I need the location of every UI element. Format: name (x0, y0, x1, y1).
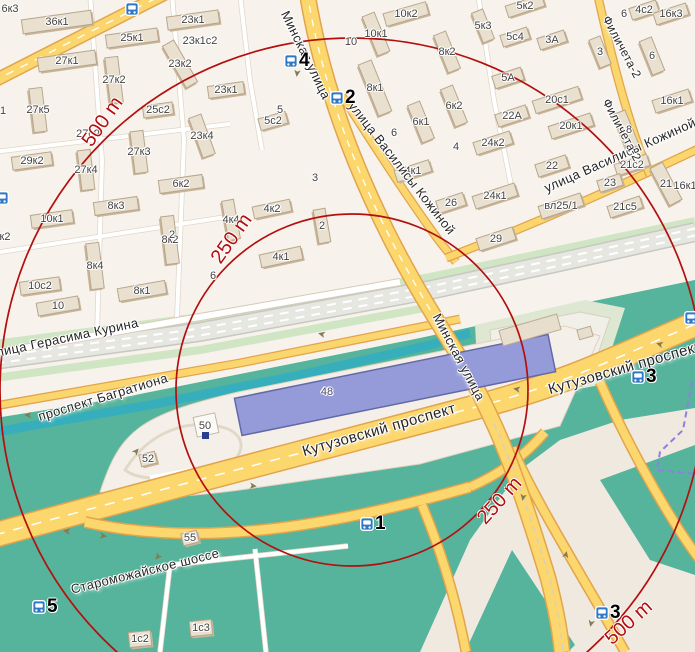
bus-stop-icon (631, 370, 645, 384)
building-label: 22А (502, 110, 522, 122)
bus-stop-icon (0, 191, 9, 205)
building-label: 23к1 (181, 14, 204, 26)
building-label: 1с3 (192, 622, 210, 634)
building-label: 16к1 (660, 95, 683, 107)
bus-stop-icon (595, 606, 609, 620)
building-label: 27к2 (102, 74, 125, 86)
bus-stop-icon (32, 600, 46, 614)
building-label: 6 (649, 50, 655, 62)
building-label: 6 (621, 8, 627, 20)
building-label: 1 (0, 105, 6, 117)
marker-number: 3 (610, 606, 621, 620)
building-label: 25с2 (146, 104, 170, 116)
building-label: 8к4 (86, 260, 103, 272)
building-label: 10к1 (40, 213, 63, 225)
building-label: 8к2 (438, 46, 455, 58)
building-label: 27к5 (26, 104, 49, 116)
building-label: 6к2 (172, 178, 189, 190)
building-label: 5к3 (474, 20, 491, 32)
building-label: 4к2 (263, 203, 280, 215)
transit-stop-marker-unnumbered[interactable] (125, 2, 139, 16)
building-label: 23к1с2 (183, 35, 218, 47)
building-label: 1с2 (131, 633, 149, 645)
building-label: 3А (545, 34, 558, 46)
building-label: 23 (604, 177, 616, 189)
bus-stop-icon (330, 91, 344, 105)
marker-number: 4 (299, 54, 310, 68)
building-label: 6к1 (412, 116, 429, 128)
building-label: 2 (169, 229, 175, 241)
building-label: 5с4 (506, 31, 524, 43)
bus-stop-icon (360, 517, 374, 531)
building-label: 52 (142, 453, 154, 465)
building-label: к2 (0, 231, 10, 243)
building-label: 20с1 (545, 94, 569, 106)
building-label: 3 (597, 46, 603, 58)
building-label: 36к1 (45, 16, 68, 28)
marker-number: 3 (646, 370, 657, 384)
road-direction-arrow: ➤ (24, 409, 32, 419)
building-label: 27к1 (55, 55, 78, 67)
road-direction-arrow: ➤ (62, 524, 72, 535)
marker-number: 1 (375, 517, 386, 531)
building-label: 23к1 (214, 84, 237, 96)
building-label: 20к1 (559, 120, 582, 132)
building-label: 25к1 (120, 32, 143, 44)
road-direction-arrow: ➤ (98, 531, 108, 542)
building-label: 10с2 (28, 280, 52, 292)
building-label: 6к2 (445, 100, 462, 112)
building-label: 8к1 (366, 82, 383, 94)
transit-stop-marker-3[interactable]: 3 (631, 370, 657, 384)
building-label: 5с2 (264, 115, 282, 127)
building-label: 10 (52, 300, 64, 312)
transit-stop-marker-4[interactable]: 4 (284, 54, 310, 68)
building-label: 8к1 (133, 285, 150, 297)
building-label: 27к4 (74, 164, 97, 176)
transit-stop-marker-unnumbered[interactable] (684, 311, 695, 325)
transit-stop-marker-5[interactable]: 5 (32, 600, 58, 614)
map-canvas[interactable]: 6к336к125к123к123к1с227к123к227к223к127к… (0, 0, 695, 652)
building-label: 2 (319, 220, 325, 232)
building-label: 8к3 (107, 200, 124, 212)
building-label: 6 (210, 270, 216, 282)
transit-stop-marker-3[interactable]: 3 (595, 606, 621, 620)
transit-stop-marker-unnumbered[interactable] (0, 191, 9, 205)
building-label: 6к3 (1, 3, 18, 15)
building-label: 16к3 (659, 8, 682, 20)
building-label: 22 (546, 160, 558, 172)
building-label: 10к2 (394, 8, 417, 20)
bus-stop-icon (125, 2, 139, 16)
marker-number: 5 (47, 600, 58, 614)
building-label: 48 (321, 386, 333, 398)
building-label: 10 (345, 36, 357, 48)
building-label: 5А (501, 72, 514, 84)
building-label: 50 (199, 420, 211, 432)
transit-stop-marker-2[interactable]: 2 (330, 91, 356, 105)
building-label: 4 (453, 141, 459, 153)
parking-icon (202, 432, 209, 439)
building-label: 10к1 (364, 28, 387, 40)
bus-stop-icon (684, 311, 695, 325)
building-label: 6 (391, 127, 397, 139)
building-label: 16к1 (673, 180, 695, 192)
building-label: 21с5 (613, 201, 637, 213)
building-label: 4с2 (635, 4, 653, 16)
building-label: 3 (312, 172, 318, 184)
building-label: 5к2 (516, 0, 533, 12)
building-label: 21 (660, 178, 672, 190)
building-label: 29к2 (20, 155, 43, 167)
building-label: 4к1 (272, 251, 289, 263)
building-label: 24к1 (483, 190, 506, 202)
road-direction-arrow: ➤ (248, 482, 257, 493)
building-label: 27к3 (127, 146, 150, 158)
building-label: 55 (184, 532, 196, 544)
bus-stop-icon (284, 54, 298, 68)
building-label: 23к2 (168, 58, 191, 70)
road-direction-arrow: ➤ (512, 382, 522, 393)
building-label: 26 (445, 197, 457, 209)
building-label: вл25/1 (544, 200, 577, 212)
building-label: 24к2 (481, 137, 504, 149)
building-label: 23к4 (190, 130, 213, 142)
building-label: 29 (490, 233, 502, 245)
transit-stop-marker-1[interactable]: 1 (360, 517, 386, 531)
marker-number: 2 (345, 91, 356, 105)
